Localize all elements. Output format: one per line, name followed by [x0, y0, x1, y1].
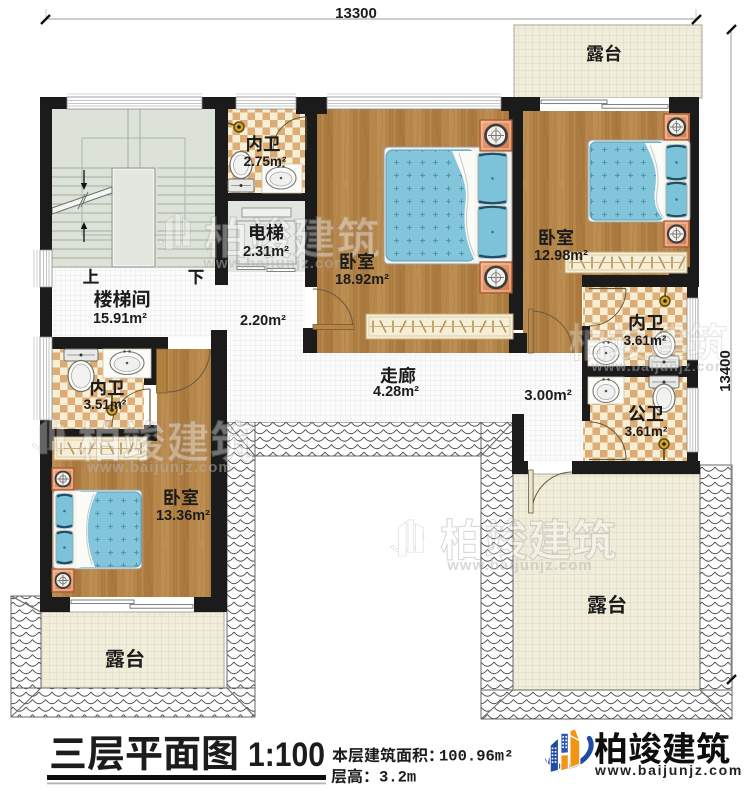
- svg-text:www.baijunjz.com: www.baijunjz.com: [446, 557, 592, 574]
- svg-text:2.20m²: 2.20m²: [240, 313, 286, 329]
- svg-text:18.92m²: 18.92m²: [335, 272, 389, 288]
- svg-text:www.baijunjz.com: www.baijunjz.com: [86, 459, 232, 476]
- svg-text:3.51m²: 3.51m²: [84, 397, 127, 412]
- svg-text:13300: 13300: [335, 5, 377, 22]
- svg-text:3.61m²: 3.61m²: [625, 424, 668, 439]
- svg-text:3.00m²: 3.00m²: [524, 387, 572, 404]
- svg-text:100.96m²: 100.96m²: [439, 748, 513, 766]
- svg-text:13.36m²: 13.36m²: [156, 508, 210, 524]
- svg-text:4.28m²: 4.28m²: [373, 384, 419, 400]
- svg-text:www.baijunjz.com: www.baijunjz.com: [591, 358, 729, 374]
- svg-text:3.2m: 3.2m: [379, 769, 416, 787]
- svg-text:2.75m²: 2.75m²: [244, 154, 287, 169]
- svg-text:www.baijunjz.com: www.baijunjz.com: [594, 762, 743, 778]
- svg-text:2.31m²: 2.31m²: [243, 244, 289, 260]
- svg-text:1:100: 1:100: [248, 736, 325, 774]
- svg-text:3.61m²: 3.61m²: [624, 333, 667, 348]
- svg-text:13400: 13400: [717, 350, 734, 392]
- svg-text:15.91m²: 15.91m²: [93, 311, 147, 327]
- svg-text:12.98m²: 12.98m²: [534, 248, 588, 264]
